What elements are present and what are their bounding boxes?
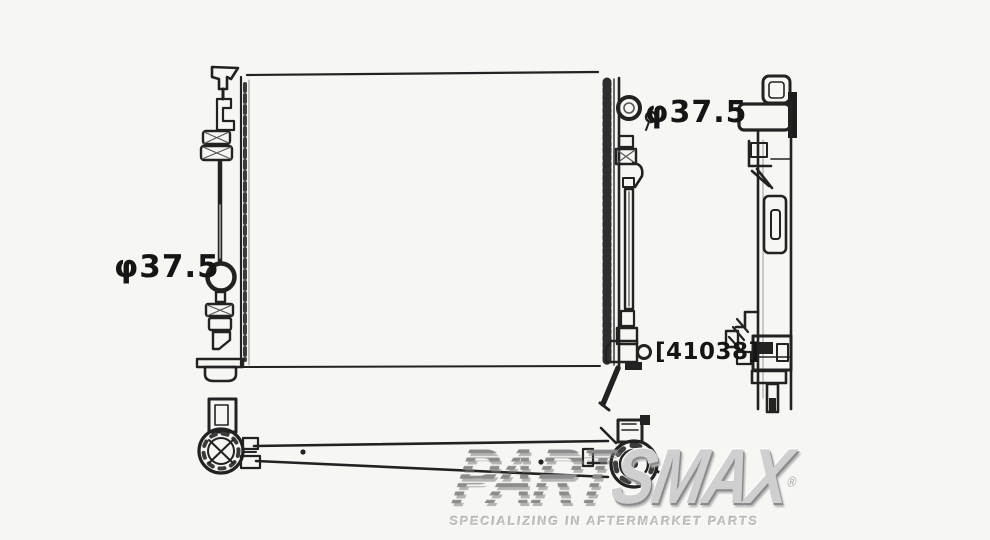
drain-tube [600, 368, 618, 410]
side-mounting-slot [764, 196, 786, 253]
left-end-boss [199, 429, 243, 473]
left-hose-connector [201, 131, 232, 160]
left-port-diameter-label: φ37.5 [114, 249, 220, 285]
lower-right-brackets [606, 311, 651, 370]
radiator-bottom-view [199, 399, 663, 487]
part-number-label: [41038] [655, 339, 760, 365]
upper-left-bracket [217, 99, 234, 130]
lower-left-fittings [206, 292, 233, 349]
bottom-crossmember-bars [243, 441, 608, 477]
radiator-front-view [197, 67, 656, 410]
side-upper-bracket [749, 141, 791, 188]
top-right-port-diameter-label: φ37.5 [645, 95, 748, 130]
left-foot-bracket [197, 359, 243, 381]
right-side-channel [625, 189, 633, 309]
filler-neck-cap [763, 76, 790, 103]
parts-diagram-canvas: φ37.5 φ37.5 [41038] PARTSMAX® SPECIALIZI… [0, 0, 990, 540]
top-mounting-pin [212, 67, 238, 99]
bottom-left-clip [209, 399, 236, 432]
